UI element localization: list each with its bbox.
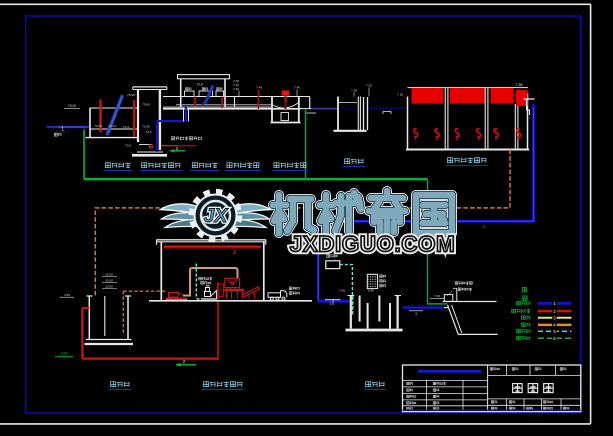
svg-text:JX: JX bbox=[204, 205, 229, 227]
svg-text:72.5: 72.5 bbox=[145, 130, 151, 134]
svg-text:7.05: 7.05 bbox=[339, 289, 345, 293]
svg-text:7.18: 7.18 bbox=[397, 93, 403, 97]
svg-text:7.25: 7.25 bbox=[366, 84, 372, 88]
svg-text:B: B bbox=[149, 144, 154, 151]
svg-text:7.35: 7.35 bbox=[516, 83, 523, 87]
svg-text:72.4: 72.4 bbox=[123, 125, 129, 129]
svg-text:JXDIGUO.COM: JXDIGUO.COM bbox=[290, 232, 456, 257]
svg-text:7.18: 7.18 bbox=[351, 89, 357, 93]
svg-text:25.00: 25.00 bbox=[105, 273, 113, 277]
svg-text:23.50: 23.50 bbox=[105, 279, 113, 283]
svg-text:70.5: 70.5 bbox=[125, 143, 131, 147]
svg-text:6.95: 6.95 bbox=[368, 289, 374, 293]
svg-text:7.46: 7.46 bbox=[294, 86, 300, 90]
svg-text:2: 2 bbox=[233, 250, 236, 256]
svg-text:72.00: 72.00 bbox=[94, 124, 102, 128]
svg-text:75.50: 75.50 bbox=[127, 93, 135, 97]
svg-text:1: 1 bbox=[329, 302, 331, 306]
svg-text:D.b: D.b bbox=[197, 82, 203, 86]
svg-text:4.50: 4.50 bbox=[64, 293, 70, 297]
svg-text:72.00: 72.00 bbox=[142, 124, 150, 128]
svg-text:75.60: 75.60 bbox=[142, 102, 150, 106]
svg-text:1: 1 bbox=[61, 127, 64, 133]
svg-text:7.46: 7.46 bbox=[256, 86, 262, 90]
svg-text:22.00: 22.00 bbox=[105, 285, 113, 289]
svg-text:0.00: 0.00 bbox=[61, 351, 68, 355]
svg-text:1: 1 bbox=[415, 312, 417, 316]
svg-text:7.00: 7.00 bbox=[434, 294, 440, 298]
svg-text:75.00: 75.00 bbox=[68, 104, 76, 108]
svg-text:7.40: 7.40 bbox=[233, 87, 239, 91]
svg-text:72.14: 72.14 bbox=[108, 124, 116, 128]
